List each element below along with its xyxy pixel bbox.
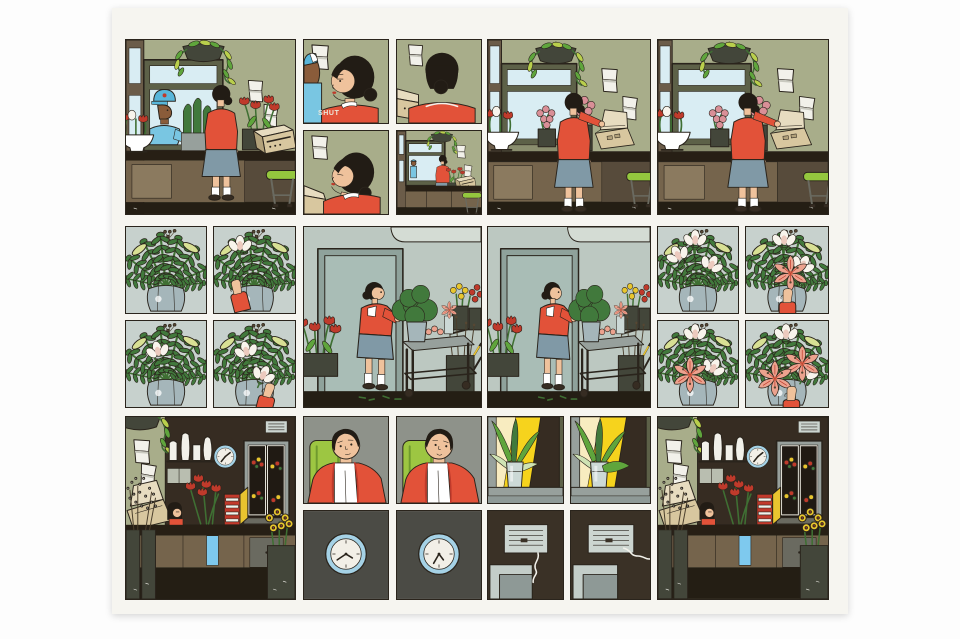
panel-r3k2-art [397,511,481,599]
panel-r1p2a-art [304,40,388,123]
panel-r3w2-art [571,417,650,503]
photo-backdrop: SHUT [0,0,960,639]
panel-r3w2 [570,416,651,504]
panel-r1p3a-art [397,40,481,123]
panel-r1p1-art [126,40,295,214]
panel-r1p2a: SHUT [303,39,389,124]
panel-r3c2 [396,416,482,504]
panel-r1p5 [657,39,829,215]
panel-r2r1 [657,226,739,314]
panel-r2l3 [125,320,207,408]
panel-r2a-art [304,227,481,407]
panel-r3v1 [487,510,564,600]
panel-r3v1-art [488,511,563,599]
panel-r1p4 [487,39,651,215]
panel-r2l1 [125,226,207,314]
panel-r3l-art [126,417,295,599]
panel-r1p2b-art [304,131,388,214]
comic-page: SHUT [112,8,848,614]
panel-r2b [487,226,651,408]
panel-r1p1 [125,39,296,215]
panel-r3w1 [487,416,564,504]
panel-r3r-art [658,417,828,599]
panel-r3w1-art [488,417,563,503]
panel-r3k1 [303,510,389,600]
panel-r2l2 [213,226,296,314]
panel-r1p2b [303,130,389,215]
panel-r1p4-art [488,40,650,214]
panel-r3k2 [396,510,482,600]
sfx-shut-text: SHUT [318,110,339,117]
panel-r3c1 [303,416,389,504]
panel-r3r [657,416,829,600]
panel-r1p3b-art [397,131,481,214]
panel-r3c1-art [304,417,388,503]
panel-r1p3b [396,130,482,215]
panel-r3l [125,416,296,600]
panel-r2r3 [657,320,739,408]
panel-r2r4 [745,320,829,408]
panel-r1p3a [396,39,482,124]
panel-r3k1-art [304,511,388,599]
panel-r2l4 [213,320,296,408]
panel-r2a [303,226,482,408]
panel-r2r2 [745,226,829,314]
panel-r3v2 [570,510,651,600]
panel-r3v2-art [571,511,650,599]
panel-r2b-art [488,227,650,407]
panel-r1p5-art [658,40,828,214]
panel-r3c2-art [397,417,481,503]
